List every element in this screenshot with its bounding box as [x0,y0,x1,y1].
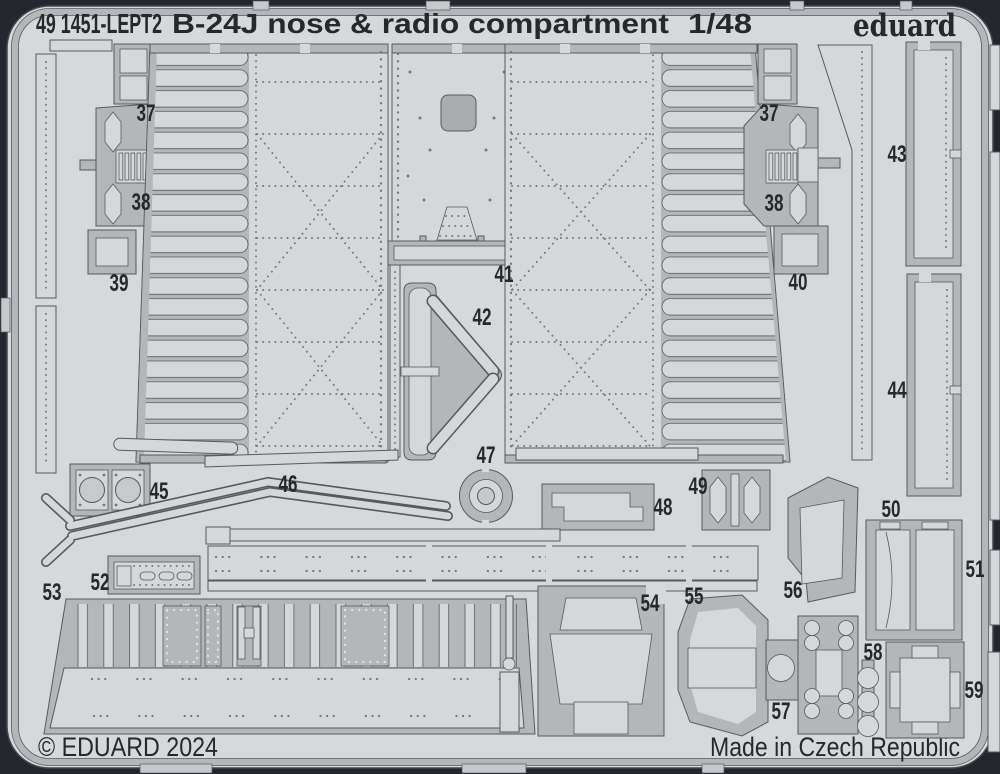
panel-right [505,44,790,463]
part-label-38-right: 38 [765,190,784,217]
part-label-59: 59 [965,677,984,704]
part-58 [858,660,879,737]
part-label-40: 40 [789,269,808,296]
pe-fret-illustration: 49 1451-LEPT2B-24J nose & radio compartm… [0,0,1000,774]
sheet-title: 49 1451-LEPT2B-24J nose & radio compartm… [36,8,752,39]
panel-left [136,44,388,463]
part-label-37-right: 37 [760,100,779,127]
part-label-39: 39 [110,270,129,297]
copyright-text: © EDUARD 2024 [38,732,218,762]
part-label-44: 44 [888,377,907,404]
photoetch-sheet-photo: 49 1451-LEPT2B-24J nose & radio compartm… [0,0,1000,774]
part-label-48: 48 [654,494,673,521]
part-label-37-left: 37 [137,100,156,127]
part-label-53: 53 [43,579,62,606]
part-37-right [758,44,797,104]
part-label-46: 46 [279,471,298,498]
part-label-57: 57 [772,698,791,725]
part-label-41: 41 [495,261,514,288]
kit-scale: 1/48 [688,8,752,39]
part-label-51: 51 [966,556,985,583]
part-50-51 [866,520,962,640]
part-label-58: 58 [864,639,883,666]
part-label-52: 52 [91,569,110,596]
part-49 [702,470,770,530]
part-43 [906,40,961,266]
part-label-54: 54 [641,590,660,617]
panel-center [392,44,522,242]
part-label-42: 42 [473,304,492,331]
part-44 [907,272,961,496]
catalog-number: 49 1451-LEPT2 [36,8,162,39]
part-40 [774,226,828,274]
part-label-43: 43 [888,141,907,168]
kit-title: B-24J nose & radio compartment [172,8,669,39]
part-label-55: 55 [685,583,704,610]
part-label-50: 50 [882,496,901,523]
part-label-49: 49 [689,473,708,500]
part-59 [886,642,964,738]
part-52 [108,556,200,594]
part-label-45: 45 [150,478,169,505]
part-label-56: 56 [784,577,803,604]
brand-logo: eduard [853,8,956,44]
part-48 [542,484,654,530]
part-label-38-left: 38 [132,189,151,216]
part-39 [88,230,136,274]
part-37-left [114,44,153,104]
part-53 [44,599,535,734]
part-label-47: 47 [477,442,496,469]
